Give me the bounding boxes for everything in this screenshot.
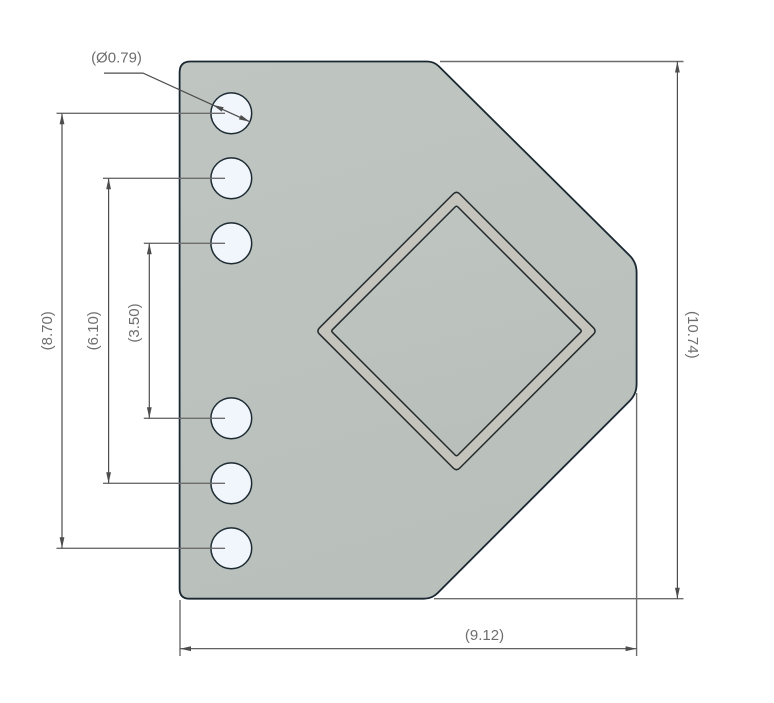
svg-text:(10.74): (10.74) bbox=[684, 311, 701, 359]
svg-text:(6.10): (6.10) bbox=[85, 311, 102, 350]
svg-text:(Ø0.79): (Ø0.79) bbox=[91, 50, 142, 67]
svg-text:(3.50): (3.50) bbox=[126, 303, 143, 342]
svg-text:(8.70): (8.70) bbox=[39, 311, 56, 350]
svg-text:(9.12): (9.12) bbox=[465, 627, 504, 644]
